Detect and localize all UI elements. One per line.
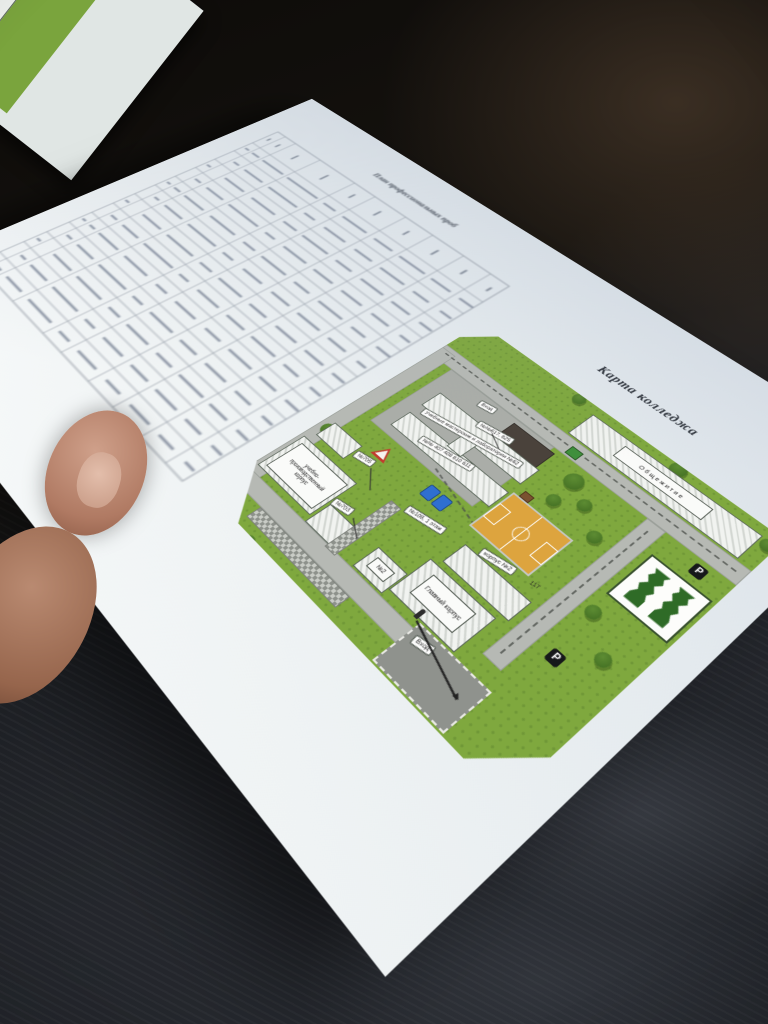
second-paper-sheet bbox=[0, 0, 204, 180]
parking-lot bbox=[372, 623, 492, 734]
tree-icon bbox=[583, 528, 606, 547]
tree-icon bbox=[581, 602, 606, 623]
logo-shape bbox=[647, 587, 695, 629]
tree-icon bbox=[590, 649, 616, 672]
tree-icon bbox=[542, 492, 564, 509]
tree-icon bbox=[573, 497, 595, 515]
tree-icon bbox=[559, 470, 589, 493]
tree-icon bbox=[569, 392, 589, 406]
building2-num: 117 bbox=[525, 578, 545, 593]
tree-icon bbox=[236, 532, 259, 551]
parking-sign-1: P bbox=[687, 562, 709, 580]
photo-scene: План профессиональных проб Карта колледж… bbox=[0, 0, 768, 1024]
parking-sign-2: P bbox=[543, 647, 567, 668]
court-key bbox=[529, 542, 558, 566]
leader-line bbox=[370, 468, 372, 490]
map-fragment bbox=[0, 0, 99, 113]
building-shape bbox=[0, 0, 26, 25]
tree-icon bbox=[222, 504, 244, 522]
